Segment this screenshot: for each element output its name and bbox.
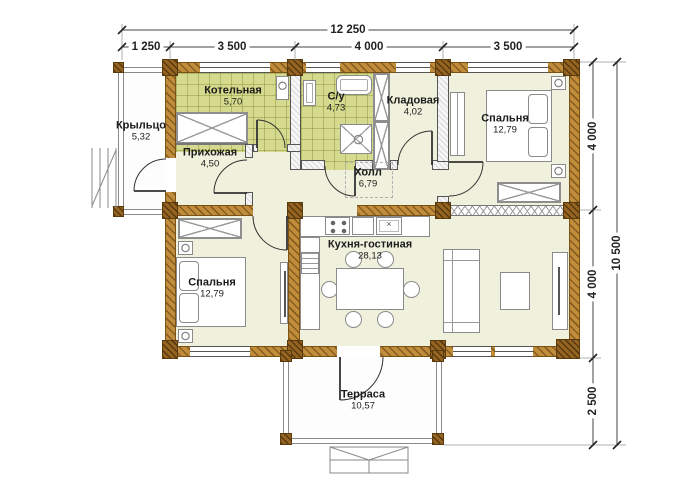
room-label-bedroom-top: Спальня 12,79 [481,112,529,135]
timber-post [556,339,580,359]
porch-post [113,206,124,217]
dim-top-seg-3: 4 000 [352,41,387,53]
timber-post [287,59,303,76]
room-name: Спальня [188,276,236,289]
terrace-post [432,350,444,362]
dim-right-seg-3: 2 500 [587,384,599,419]
room-label-boiler: Котельная 5,70 [204,84,262,107]
porch-steps [92,148,116,208]
chair [345,311,362,328]
timber-post [162,202,178,219]
room-label-bedroom-bottom: Спальня 12,79 [188,276,236,299]
timber-post [435,59,451,76]
room-area: 28,13 [328,251,412,261]
shower-tray [340,124,372,154]
room-area: 12,79 [188,289,236,299]
room-area: 10,57 [341,401,385,411]
entry-wardrobe [176,112,248,144]
chair [377,311,394,328]
partition-line [176,143,248,145]
timber-post [162,340,178,359]
terrace-steps [330,447,408,473]
timber-post [563,59,580,76]
window [495,346,533,357]
dim-top-total: 12 250 [327,24,368,36]
room-label-storage: Кладовая 4,02 [387,94,440,117]
dim-top-seg-4: 3 500 [491,41,526,53]
timber-post [435,202,451,219]
room-area: 4,02 [387,107,440,117]
interior-wall-kitchen [288,216,300,346]
terrace-post [280,433,292,445]
dim-right-seg-1: 4 000 [587,119,599,154]
tv-screen [558,267,560,315]
timber-post [162,59,178,76]
timber-post [287,202,303,219]
nightstand [551,76,566,90]
window [306,62,340,73]
door-opening [165,158,176,192]
window [396,62,430,73]
door-opening [337,346,380,357]
room-area: 12,79 [481,125,529,135]
door-opening [253,205,287,216]
passage-opening [301,205,357,216]
partition-wall [253,144,258,152]
porch-wall [118,209,165,215]
timber-post [563,202,580,219]
terrace-wall [436,352,442,444]
dim-top-seg-2: 3 500 [215,41,250,53]
partition-wall [290,73,301,170]
dining-table [336,268,404,310]
sink-cross-icon: × [380,219,398,233]
room-name: Спальня [481,112,529,125]
kitchen-counter-side [300,237,320,330]
window [190,346,250,357]
pillow [528,127,548,157]
wardrobe [497,182,561,203]
room-name: Прихожая [183,146,237,159]
room-area: 4,50 [183,159,237,169]
room-name: С/у [327,90,346,103]
window [468,62,548,73]
tv-screen [284,271,286,317]
room-name: Кухня-гостиная [328,238,412,251]
boiler-unit [276,76,289,100]
porch-wall [118,67,165,73]
partition-wall [245,144,253,158]
room-label-terrace: Терраса 10,57 [341,388,385,411]
room-label-bathroom: С/у 4,73 [327,90,346,113]
stove [325,217,350,235]
chair [403,281,420,298]
room-label-kitchen: Кухня-гостиная 28,13 [328,238,412,261]
washbasin [303,80,316,106]
nightstand [178,329,193,343]
interior-wall-frame [449,205,569,216]
room-name: Котельная [204,84,262,97]
room-name: Крыльцо [116,119,166,132]
pillow [528,94,548,124]
room-name: Холл [354,166,382,179]
window [200,62,270,73]
wardrobe-cabinet [450,92,465,156]
nightstand [178,241,193,255]
terrace-post [280,350,292,362]
fridge [301,252,319,274]
room-label-porch: Крыльцо 5,32 [116,119,166,142]
nightstand [551,164,566,178]
partition-wall [287,144,301,152]
room-name: Терраса [341,388,385,401]
partition-wall [301,160,325,170]
room-label-hall: Холл 6,79 [354,166,382,189]
room-name: Кладовая [387,94,440,107]
room-area: 5,70 [204,97,262,107]
room-label-entry: Прихожая 4,50 [183,146,237,169]
terrace-wall [283,438,442,444]
terrace-wall [283,352,289,444]
porch-post [113,62,124,73]
room-area: 4,73 [327,103,346,113]
sofa [443,249,480,333]
tv-console [552,252,568,330]
dim-right-total: 10 500 [611,232,623,273]
wardrobe [178,218,242,239]
room-area: 5,32 [116,132,166,142]
floor-plan: × [0,0,700,496]
terrace-post [432,433,444,445]
coffee-table [500,272,530,310]
dim-right-seg-2: 4 000 [587,267,599,302]
tv-unit [280,262,288,324]
room-area: 6,79 [354,179,382,189]
dim-top-seg-1: 1 250 [129,41,164,53]
counter-appliance [352,217,374,235]
window [453,346,491,357]
